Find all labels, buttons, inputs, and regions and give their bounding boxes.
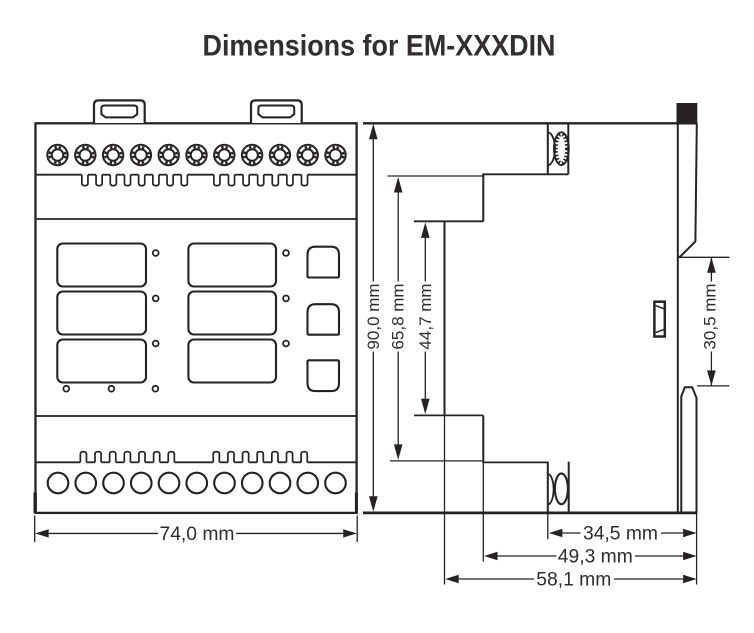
svg-text:30,5 mm: 30,5 mm	[701, 283, 720, 349]
svg-text:Dimensions for EM-XXXDIN: Dimensions for EM-XXXDIN	[203, 29, 556, 62]
svg-text:65,8 mm: 65,8 mm	[389, 283, 408, 349]
svg-text:49,3 mm: 49,3 mm	[558, 547, 633, 568]
svg-text:90,0 mm: 90,0 mm	[364, 283, 383, 349]
svg-text:44,7 mm: 44,7 mm	[416, 283, 435, 349]
svg-text:58,1 mm: 58,1 mm	[536, 570, 611, 591]
svg-text:34,5 mm: 34,5 mm	[583, 524, 658, 545]
svg-text:74,0 mm: 74,0 mm	[159, 524, 234, 545]
